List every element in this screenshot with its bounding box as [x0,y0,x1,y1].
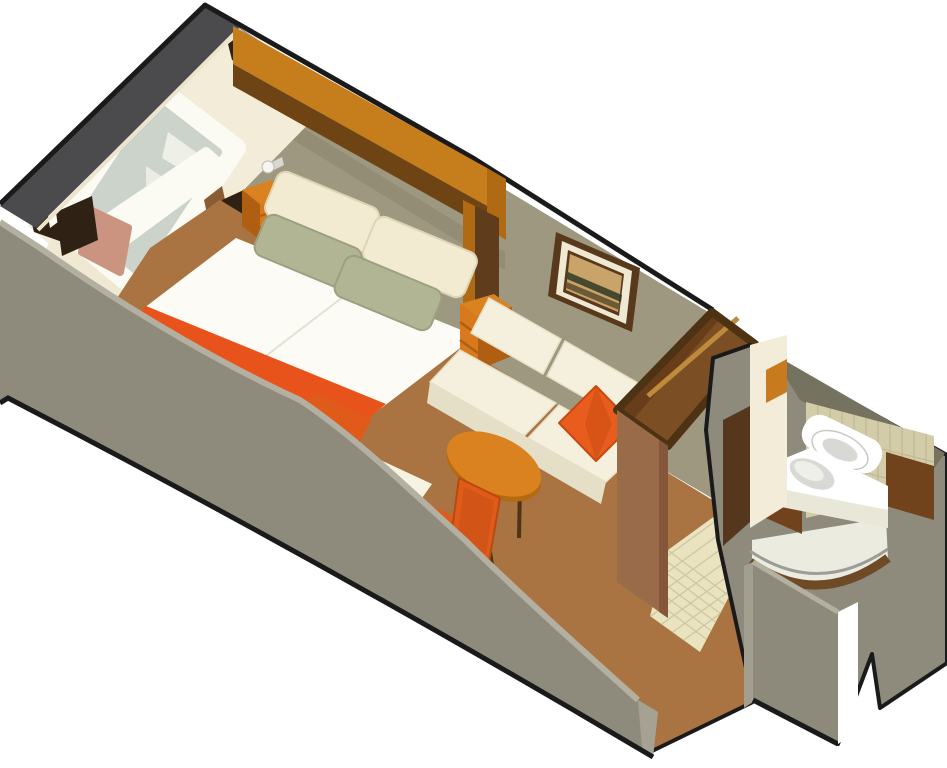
lamp-globe [262,161,274,173]
corridor-doorway-shadow [723,406,750,546]
wardrobe-front-edge [659,440,668,618]
wall-gap-sliver [838,602,858,744]
isometric-cutaway-rendering [0,0,947,768]
stateroom-floorplan [0,0,947,768]
corridor-wall-cap [744,562,753,708]
